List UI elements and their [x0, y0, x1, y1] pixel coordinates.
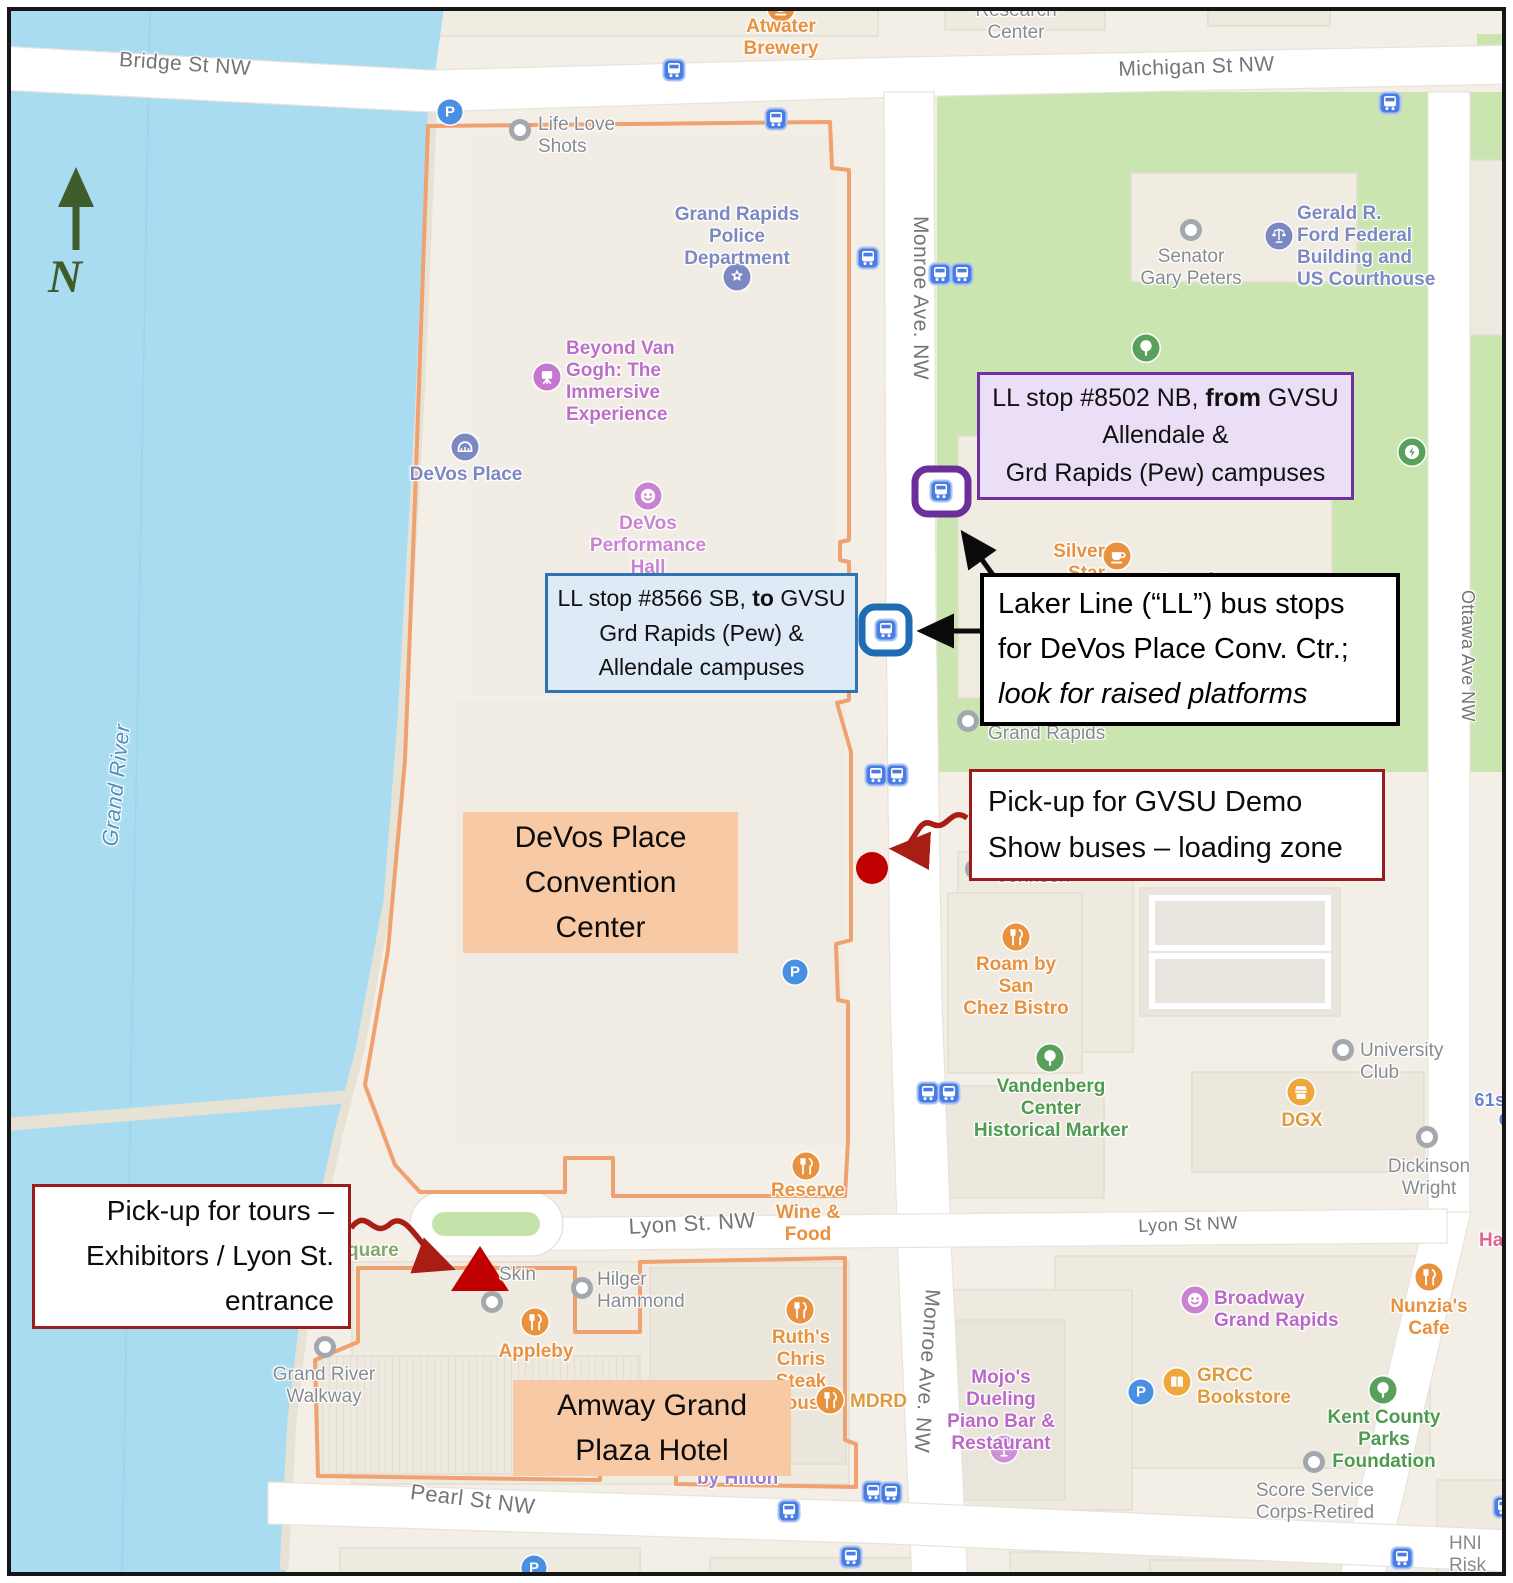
demo-pickup-box: Pick-up for GVSU Demo Show buses – loadi…: [969, 769, 1385, 881]
bus-stop-icon: [777, 1499, 801, 1523]
poi-label-grand-river-walkway: Grand RiverWalkway: [272, 1364, 376, 1408]
cafe-icon: [1104, 543, 1131, 570]
poi-label-atwater-brewery: AtwaterBrewery: [722, 16, 840, 60]
amway-area-label: Amway Grand Plaza Hotel: [513, 1380, 791, 1476]
poi-icon-dickinson-wright: [1416, 1126, 1438, 1148]
poi-label-grand-rapids-gray: Grand Rapids: [988, 723, 1118, 745]
poi-label-nunzias-cafe: Nunzia's Cafe: [1369, 1296, 1489, 1340]
poi-label-hilger-hammond: HilgerHammond: [597, 1269, 707, 1313]
bus-stop-icon: [950, 262, 974, 286]
poi-label-square-partial: quare: [347, 1240, 417, 1262]
street-label-monroe-ave-top: Monroe Ave. NW: [908, 216, 932, 380]
bus-stop-icon: [937, 1081, 961, 1105]
store-icon: [1288, 1079, 1315, 1106]
tree-icon: [1133, 335, 1160, 362]
north-label: N: [48, 250, 82, 304]
poi-label-research-center: ResearchCenter: [962, 0, 1070, 44]
poi-label-ford-federal-building: Gerald R.Ford FederalBuilding andUS Cour…: [1297, 203, 1437, 290]
poi-label-devos-place: DeVos Place: [407, 464, 525, 486]
poi-label-vandenberg-marker: Vandenberg CenterHistorical Marker: [965, 1076, 1137, 1142]
map-stage: N DeVos Place Convention Center Amway Gr…: [0, 0, 1513, 1583]
poi-label-kent-county-parks: Kent CountyParks Foundation: [1310, 1407, 1458, 1473]
parking-icon: P: [1129, 1380, 1154, 1405]
poi-label-dickinson-wright: DickinsonWright: [1385, 1156, 1473, 1200]
restaurant-icon: [1416, 1264, 1443, 1291]
bus-stop-icon: [928, 262, 952, 286]
poi-label-broadway-gr: BroadwayGrand Rapids: [1214, 1288, 1346, 1332]
poi-label-senator-gary-peters: SenatorGary Peters: [1138, 246, 1244, 290]
masks-icon: [1182, 1287, 1209, 1314]
restaurant-icon: [522, 1309, 549, 1336]
easel-icon: [534, 364, 561, 391]
poi-label-grcc-bookstore: GRCCBookstore: [1197, 1365, 1307, 1409]
restaurant-icon: [817, 1387, 844, 1414]
poi-label-roam-san-chez: Roam by SanChez Bistro: [958, 954, 1074, 1020]
street-label-lyon-st-right: Lyon St NW: [1138, 1213, 1238, 1237]
poi-icon-grand-rapids-gray: [957, 710, 979, 732]
poi-icon-grand-river-walkway: [314, 1336, 336, 1358]
street-label-61st-c: 61stC: [1472, 1090, 1512, 1130]
masks-icon: [635, 483, 662, 510]
parking-icon: P: [783, 960, 808, 985]
tree-icon: [1370, 1377, 1397, 1404]
poi-label-gr-police-dept: Grand RapidsPoliceDepartment: [667, 204, 807, 270]
poi-label-skin: Skin: [499, 1264, 551, 1286]
ev-icon: [1399, 439, 1426, 466]
laker-line-box: Laker Line (“LL”) bus stops for DeVos Pl…: [980, 573, 1400, 726]
bus-stop-icon: [879, 1481, 903, 1505]
poi-label-life-love-shots: Life LoveShots: [538, 114, 630, 158]
poi-label-mojos-piano-bar: Mojo'sDuelingPiano Bar &Restaurant: [945, 1367, 1057, 1454]
poi-icon-score-service: [1303, 1451, 1325, 1473]
poi-label-beyond-van-gogh: Beyond VanGogh: TheImmersiveExperience: [566, 338, 694, 425]
poi-icon-university-club: [1332, 1039, 1354, 1061]
bus-stop-icon: [1492, 1495, 1513, 1519]
bus-stop-icon: [929, 479, 953, 503]
parking-icon: P: [438, 100, 463, 125]
poi-icon-senator-gary-peters: [1180, 219, 1202, 241]
poi-label-appleby: Appleby: [496, 1341, 576, 1363]
bus-stop-icon: [885, 763, 909, 787]
poi-icon-life-love-shots: [509, 119, 531, 141]
bus-stop-icon: [874, 618, 898, 642]
book-icon: [1164, 1369, 1191, 1396]
ll-stop-8502-box: LL stop #8502 NB, from GVSU Allendale & …: [977, 372, 1354, 500]
devos-place-area-label: DeVos Place Convention Center: [463, 812, 738, 953]
restaurant-icon: [793, 1153, 820, 1180]
bus-stop-icon: [662, 58, 686, 82]
poi-icon-hilger-hammond: [571, 1277, 593, 1299]
poi-label-hai-partial: Hai: [1479, 1230, 1513, 1252]
bridge-icon: [452, 434, 479, 461]
poi-label-score-service: Score ServiceCorps-Retired: [1252, 1480, 1378, 1524]
ll-stop-8566-box: LL stop #8566 SB, to GVSU Grd Rapids (Pe…: [545, 573, 858, 693]
bus-stop-icon: [856, 246, 880, 270]
scales-icon: [1266, 223, 1293, 250]
poi-label-mdrd: MDRD: [850, 1391, 914, 1413]
restaurant-icon: [787, 1297, 814, 1324]
bus-stop-icon: [1390, 1546, 1414, 1570]
street-label-ottawa-ave: Ottawa Ave NW: [1458, 590, 1478, 722]
demo-pickup-dot: [856, 852, 888, 884]
map-screenshot: N DeVos Place Convention Center Amway Gr…: [0, 0, 1513, 1583]
poi-label-reserve-wine-food: ReserveWine & Food: [752, 1180, 864, 1246]
poi-label-hni-risk: HNI RiskServices: [1449, 1533, 1513, 1583]
bus-stop-icon: [764, 107, 788, 131]
tours-pickup-box: Pick-up for tours – Exhibitors / Lyon St…: [32, 1184, 351, 1329]
bus-stop-icon: [1378, 91, 1402, 115]
poi-icon-skin: [481, 1291, 503, 1313]
poi-label-devos-performance-hall: DeVosPerformanceHall: [586, 513, 710, 579]
parking-icon: P: [522, 1556, 547, 1581]
poi-label-dgx: DGX: [1272, 1110, 1332, 1132]
tree-icon: [1037, 1045, 1064, 1072]
poi-label-university-club: UniversityClub: [1360, 1040, 1465, 1084]
restaurant-icon: [1003, 924, 1030, 951]
bus-stop-icon: [839, 1545, 863, 1569]
